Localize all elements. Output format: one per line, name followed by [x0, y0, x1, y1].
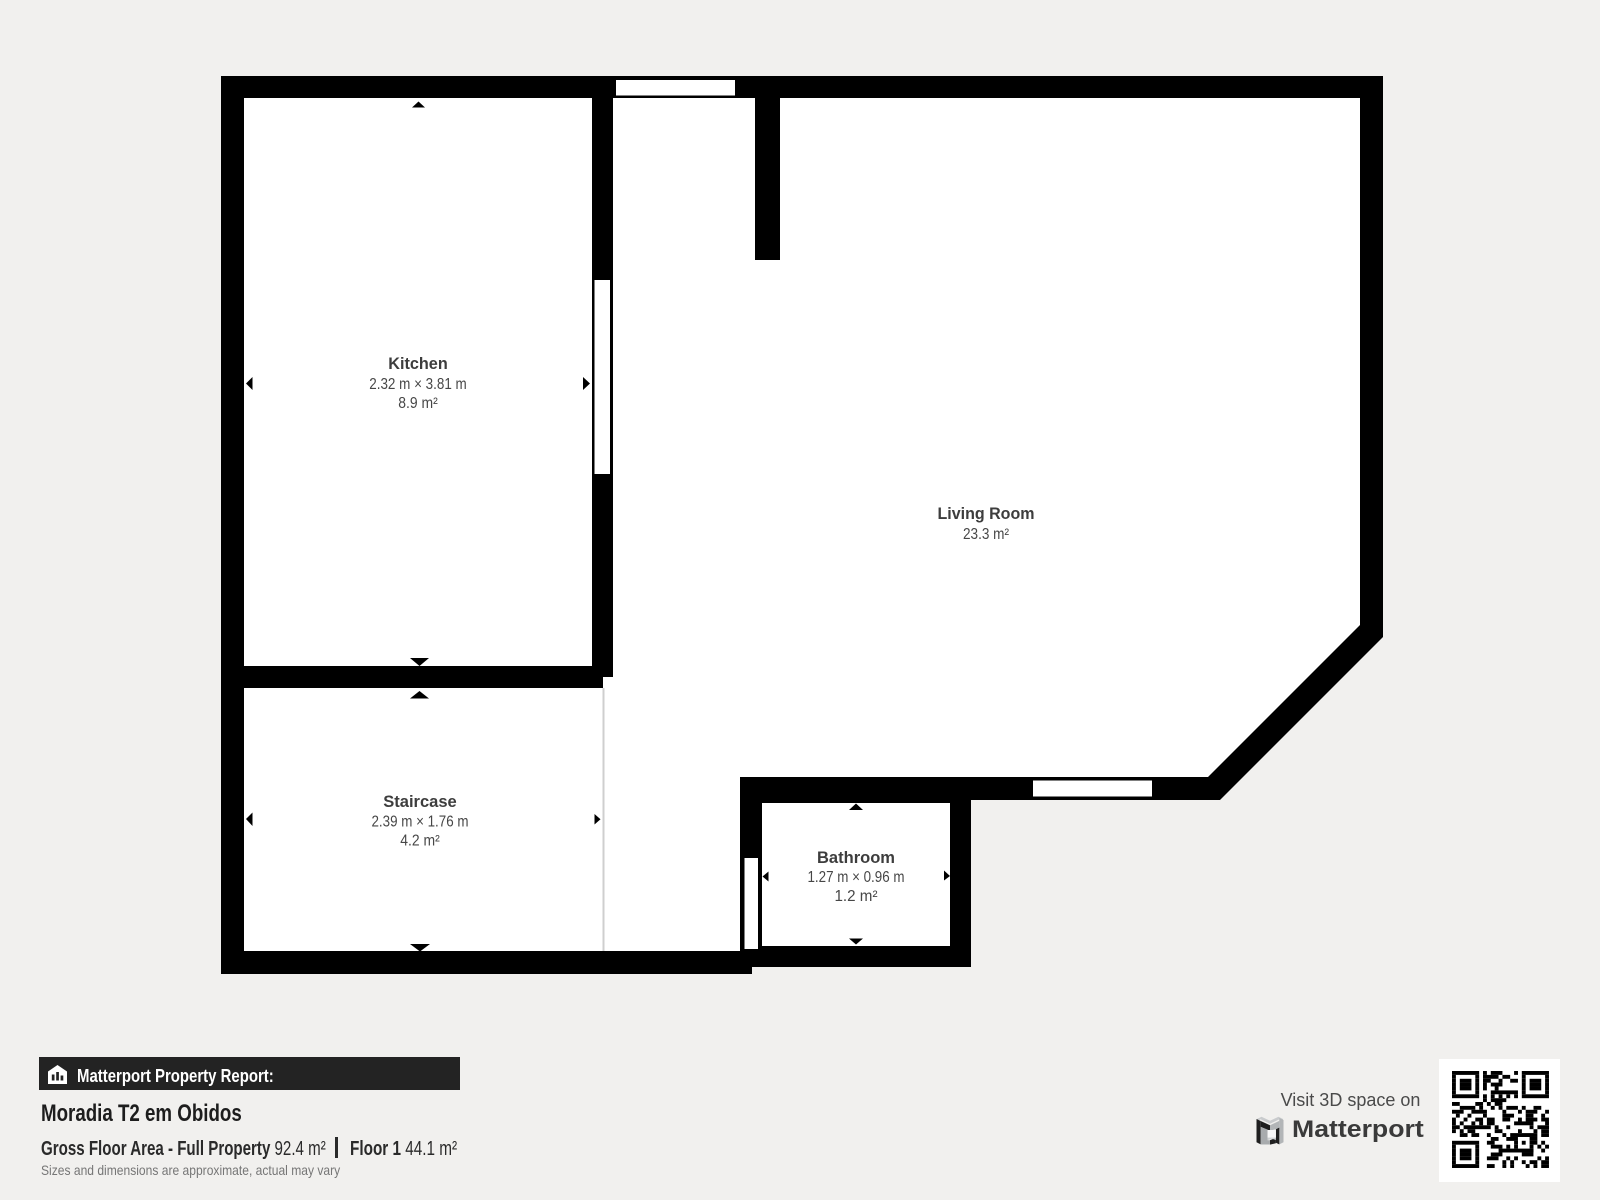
svg-text:Kitchen: Kitchen: [388, 355, 448, 373]
svg-text:Bathroom: Bathroom: [817, 849, 895, 867]
svg-text:Living Room: Living Room: [938, 505, 1035, 523]
svg-text:1.2 m²: 1.2 m²: [835, 888, 878, 905]
svg-text:2.32 m × 3.81 m: 2.32 m × 3.81 m: [369, 376, 467, 393]
svg-text:1.27 m × 0.96 m: 1.27 m × 0.96 m: [808, 869, 905, 886]
svg-text:2.39 m × 1.76 m: 2.39 m × 1.76 m: [372, 814, 469, 831]
svg-text:8.9 m²: 8.9 m²: [398, 395, 438, 412]
svg-text:23.3 m²: 23.3 m²: [963, 526, 1009, 543]
svg-text:4.2 m²: 4.2 m²: [400, 833, 440, 850]
svg-text:Staircase: Staircase: [383, 793, 457, 811]
